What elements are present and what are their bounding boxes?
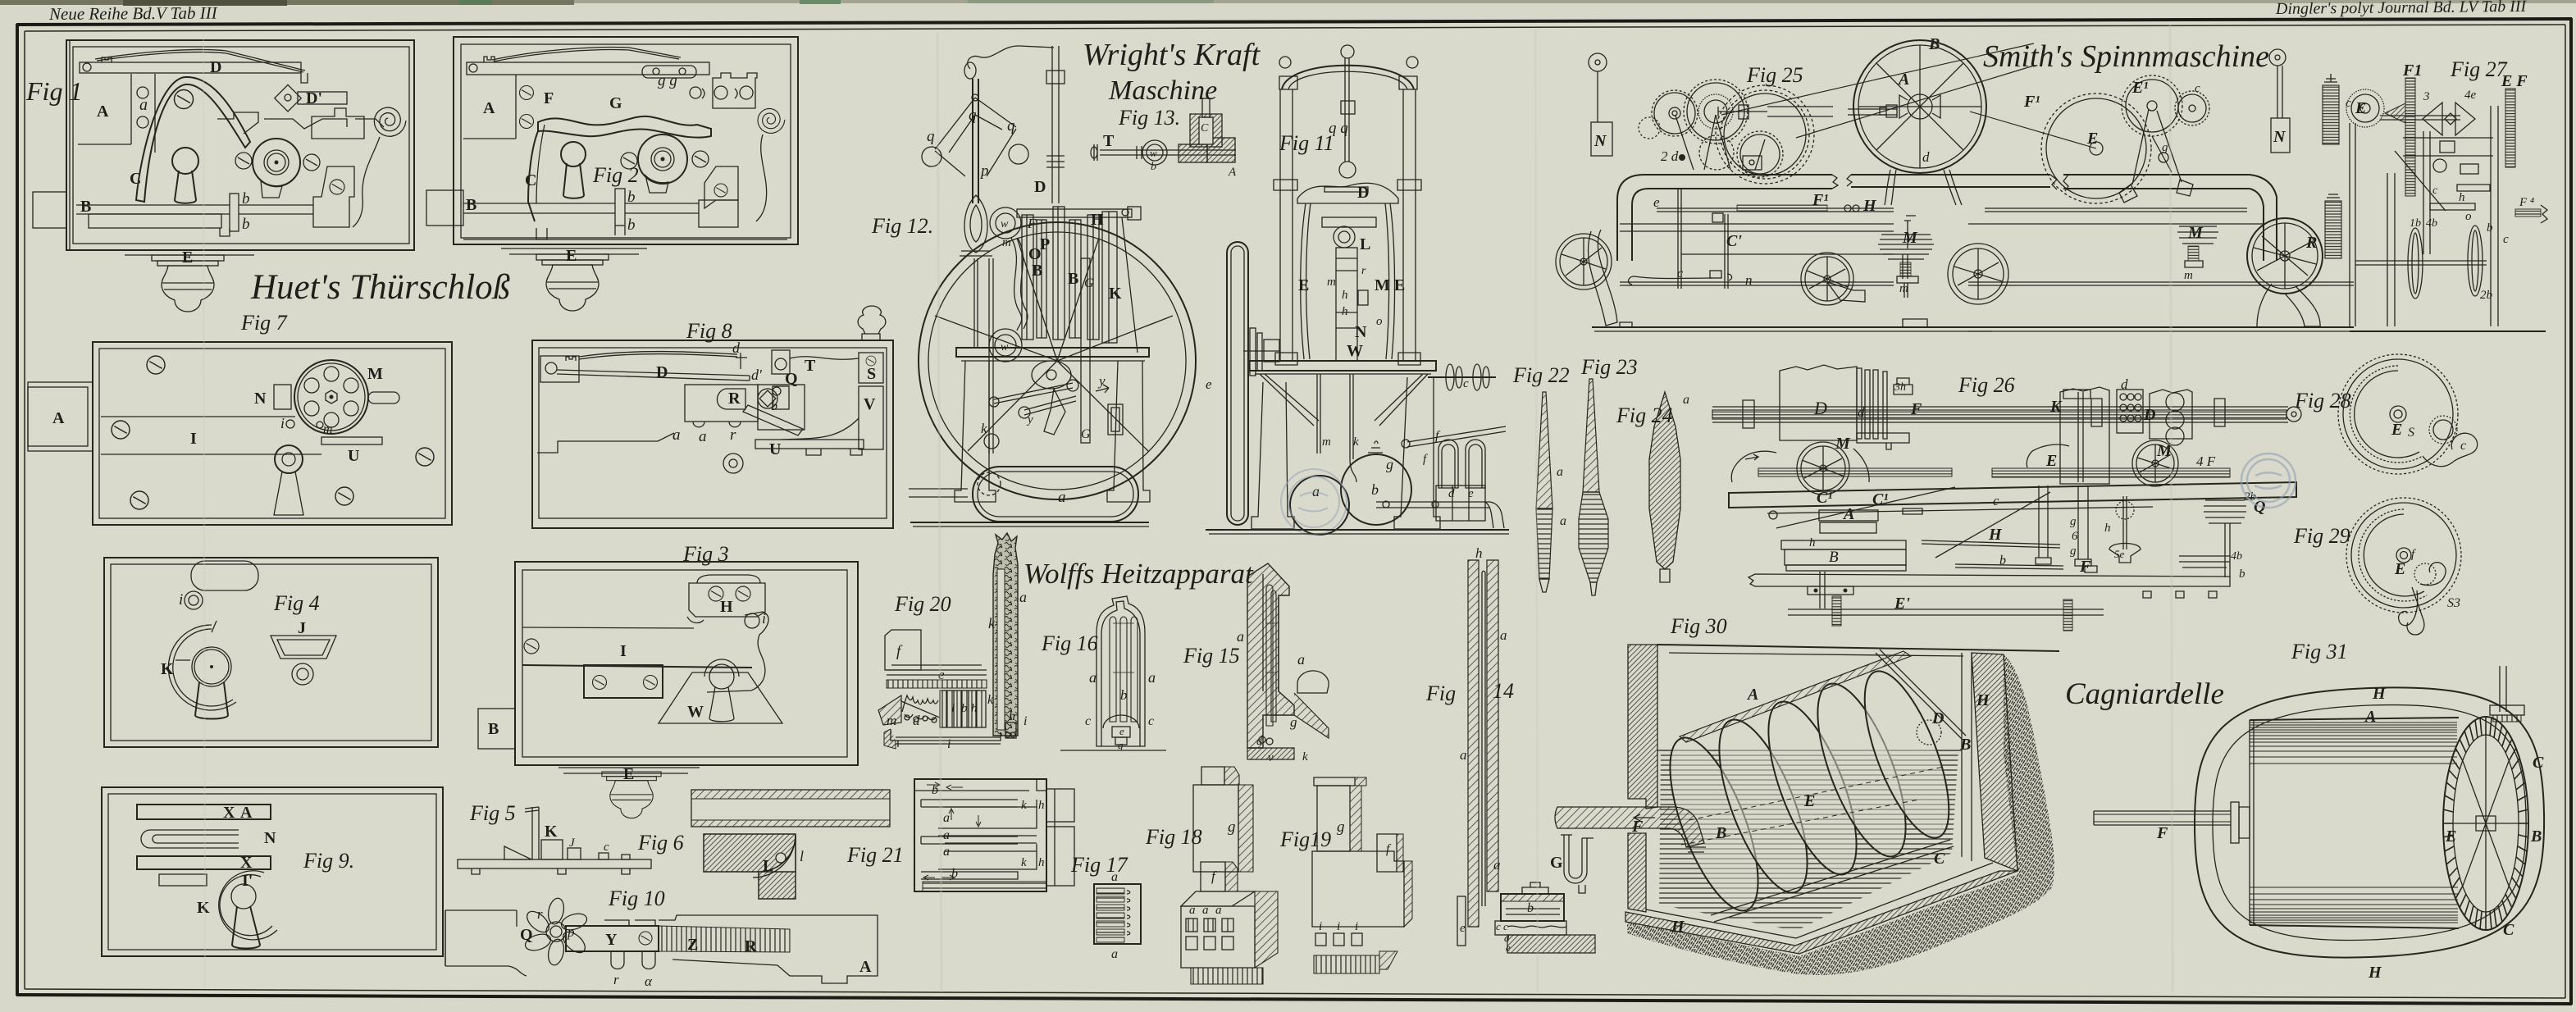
- svg-text:q q: q q: [1329, 120, 1348, 137]
- svg-text:e: e: [1206, 376, 1212, 392]
- svg-text:c: c: [604, 841, 609, 854]
- svg-text:U: U: [348, 447, 359, 465]
- svg-text:E: E: [2391, 421, 2402, 439]
- svg-text:Fig 9.: Fig 9.: [303, 849, 354, 873]
- svg-text:T: T: [805, 357, 816, 375]
- svg-text:N: N: [264, 829, 276, 847]
- svg-text:c c: c c: [1496, 920, 1508, 932]
- svg-text:F: F: [1910, 400, 1922, 418]
- svg-text:a: a: [1189, 904, 1196, 917]
- svg-text:E: E: [1298, 276, 1309, 294]
- svg-text:g: g: [2162, 141, 2168, 154]
- svg-text:e: e: [1460, 922, 1466, 935]
- svg-text:K: K: [545, 823, 558, 841]
- svg-text:b: b: [771, 399, 777, 413]
- svg-text:T: T: [1103, 132, 1115, 150]
- svg-text:B: B: [1959, 736, 1971, 754]
- svg-text:c: c: [2195, 82, 2200, 95]
- svg-text:Fig 13.: Fig 13.: [1118, 106, 1180, 130]
- svg-text:h: h: [2104, 522, 2111, 535]
- svg-text:k: k: [987, 693, 994, 707]
- svg-text:c: c: [2432, 185, 2438, 197]
- svg-text:Fig 10: Fig 10: [608, 887, 665, 910]
- svg-text:d: d: [1256, 736, 1263, 748]
- svg-text:R: R: [745, 937, 757, 955]
- svg-text:g g: g g: [658, 72, 677, 89]
- svg-text:Fig 6: Fig 6: [637, 831, 684, 855]
- svg-text:a: a: [943, 828, 950, 842]
- svg-text:d': d': [751, 367, 763, 383]
- svg-text:d: d: [1448, 487, 1455, 500]
- svg-text:Fig19: Fig19: [1279, 827, 1331, 851]
- svg-text:6: 6: [2072, 530, 2078, 543]
- svg-text:J: J: [298, 619, 306, 637]
- svg-text:E¹: E¹: [2131, 79, 2148, 97]
- svg-text:k: k: [1353, 435, 1359, 449]
- svg-text:3h: 3h: [1894, 381, 1906, 394]
- svg-text:q: q: [1007, 117, 1015, 134]
- svg-text:V: V: [864, 395, 876, 413]
- svg-text:A: A: [859, 958, 872, 976]
- svg-text:B: B: [1715, 824, 1726, 842]
- svg-text:F: F: [1027, 216, 1037, 231]
- svg-text:D: D: [1931, 709, 1944, 727]
- svg-text:Dingler's polyt Journal Bd. L: Dingler's polyt Journal Bd. LV Tab III: [2275, 0, 2528, 18]
- svg-text:r: r: [537, 906, 543, 922]
- svg-text:S: S: [867, 365, 876, 383]
- svg-text:Fig 16: Fig 16: [1041, 631, 1098, 655]
- svg-text:b: b: [1151, 161, 1156, 173]
- svg-text:F¹: F¹: [1812, 191, 1828, 209]
- svg-text:H: H: [1671, 918, 1685, 936]
- svg-text:Fig 30: Fig 30: [1670, 614, 1727, 638]
- svg-text:h: h: [1038, 856, 1045, 869]
- svg-text:C: C: [1934, 850, 1945, 868]
- svg-text:E: E: [2045, 452, 2057, 470]
- svg-text:H: H: [1091, 211, 1104, 229]
- svg-text:w: w: [1001, 341, 1009, 353]
- svg-text:Z: Z: [687, 936, 698, 954]
- svg-text:E F: E F: [2501, 72, 2528, 90]
- svg-text:X: X: [223, 804, 235, 822]
- svg-text:a: a: [1019, 589, 1027, 605]
- svg-text:A: A: [97, 103, 109, 121]
- svg-text:a: a: [1237, 628, 1244, 645]
- svg-text:C: C: [2503, 921, 2514, 939]
- svg-text:a: a: [1202, 904, 1209, 917]
- svg-text:h: h: [971, 702, 978, 715]
- svg-text:m: m: [1002, 236, 1011, 249]
- svg-text:K: K: [1109, 285, 1122, 303]
- svg-text:a: a: [1297, 651, 1305, 668]
- svg-text:D: D: [210, 58, 221, 76]
- svg-text:N: N: [254, 390, 267, 408]
- svg-text:N: N: [1593, 132, 1607, 150]
- svg-text:a: a: [1500, 627, 1507, 643]
- svg-text:3: 3: [2423, 90, 2430, 103]
- svg-text:H: H: [1988, 526, 2003, 544]
- svg-text:g: g: [1337, 818, 1345, 836]
- svg-text:Cagniardelle: Cagniardelle: [2065, 677, 2224, 711]
- svg-text:d: d: [2121, 376, 2128, 392]
- svg-text:5e: 5e: [2114, 548, 2125, 560]
- svg-text:n: n: [1745, 272, 1753, 288]
- svg-text:W: W: [687, 703, 704, 721]
- svg-text:E: E: [1803, 792, 1815, 810]
- svg-text:k: k: [1021, 856, 1027, 869]
- svg-text:B: B: [1928, 35, 1940, 53]
- svg-text:D: D: [656, 363, 668, 381]
- svg-text:m: m: [1327, 276, 1336, 289]
- svg-text:L: L: [763, 857, 773, 875]
- svg-text:Fig 15: Fig 15: [1183, 644, 1240, 668]
- svg-text:b: b: [1999, 554, 2006, 568]
- svg-text:r: r: [613, 972, 619, 987]
- svg-text:α: α: [645, 973, 653, 989]
- svg-text:w: w: [1001, 218, 1009, 230]
- svg-text:E: E: [2355, 99, 2366, 117]
- svg-text:I': I': [242, 872, 253, 890]
- svg-text:a: a: [1058, 489, 1066, 506]
- svg-text:F: F: [2156, 824, 2168, 842]
- svg-text:l: l: [800, 848, 804, 864]
- svg-text:Q: Q: [520, 926, 533, 944]
- svg-text:F: F: [544, 89, 554, 107]
- svg-text:v: v: [1268, 751, 1274, 764]
- svg-text:c: c: [2503, 233, 2509, 246]
- svg-text:C: C: [525, 171, 536, 189]
- svg-text:a: a: [1312, 483, 1320, 499]
- svg-text:q: q: [927, 128, 935, 145]
- svg-text:g: g: [1290, 714, 1297, 730]
- svg-text:D': D': [306, 89, 322, 107]
- svg-text:c: c: [1148, 714, 1154, 728]
- svg-text:A: A: [52, 409, 65, 427]
- svg-text:b: b: [242, 216, 250, 233]
- svg-text:A: A: [1842, 505, 1854, 523]
- svg-text:i: i: [1024, 714, 1027, 728]
- svg-text:p: p: [979, 162, 989, 180]
- svg-text:C: C: [2533, 754, 2544, 772]
- svg-text:e: e: [1119, 725, 1124, 737]
- svg-text:Fig 20: Fig 20: [894, 592, 951, 616]
- svg-text:Q: Q: [785, 370, 798, 388]
- svg-text:B: B: [1068, 270, 1078, 288]
- svg-text:g: g: [1228, 818, 1236, 836]
- svg-text:F: F: [1631, 818, 1644, 836]
- svg-text:b: b: [961, 702, 968, 715]
- svg-text:G: G: [609, 94, 622, 112]
- svg-text:D: D: [2143, 406, 2155, 424]
- svg-text:g: g: [2070, 515, 2077, 528]
- svg-text:G: G: [1081, 427, 1091, 441]
- svg-text:P: P: [1040, 235, 1050, 253]
- svg-text:F¹: F¹: [2023, 93, 2040, 111]
- svg-text:C: C: [1201, 122, 1209, 134]
- svg-text:h: h: [1809, 536, 1816, 549]
- svg-text:Fig 5: Fig 5: [469, 801, 516, 825]
- svg-text:Neue Reihe Bd.V Tab III: Neue Reihe Bd.V Tab III: [48, 3, 218, 24]
- svg-text:d: d: [1858, 404, 1865, 420]
- svg-text:Fig 28: Fig 28: [2294, 389, 2351, 413]
- svg-text:g: g: [1386, 456, 1393, 472]
- svg-text:A: A: [240, 804, 253, 822]
- svg-text:W: W: [1347, 342, 1363, 360]
- svg-text:Huet's Thürschloß: Huet's Thürschloß: [250, 268, 510, 307]
- svg-text:i: i: [1355, 920, 1358, 933]
- svg-text:Fig 29: Fig 29: [2293, 524, 2350, 548]
- svg-text:Fig: Fig: [1425, 682, 1456, 705]
- svg-text:4b: 4b: [2231, 550, 2242, 563]
- svg-text:S3: S3: [2447, 596, 2460, 610]
- svg-text:b: b: [627, 189, 636, 206]
- svg-text:a: a: [699, 428, 707, 445]
- svg-text:h: h: [2459, 191, 2465, 204]
- svg-text:c: c: [1463, 377, 1469, 390]
- svg-text:K: K: [2049, 398, 2063, 416]
- svg-text:X: X: [240, 854, 253, 872]
- svg-text:F ⁴: F ⁴: [2519, 196, 2534, 209]
- svg-text:m: m: [323, 422, 333, 436]
- svg-text:F: F: [2079, 558, 2091, 576]
- svg-text:A: A: [1897, 71, 1909, 89]
- svg-text:k: k: [1302, 750, 1308, 764]
- svg-text:B: B: [1032, 262, 1042, 280]
- svg-text:G: G: [1084, 276, 1094, 290]
- svg-text:c: c: [1993, 493, 1999, 508]
- svg-text:A: A: [2364, 708, 2376, 726]
- svg-text:Fig 27: Fig 27: [2450, 57, 2508, 81]
- svg-text:k: k: [981, 421, 987, 436]
- svg-text:d: d: [732, 340, 741, 356]
- svg-text:a: a: [943, 845, 950, 859]
- svg-text:g: g: [2070, 545, 2077, 558]
- svg-text:b: b: [1527, 901, 1534, 915]
- svg-text:e: e: [1653, 194, 1660, 210]
- svg-text:U: U: [769, 440, 781, 458]
- svg-text:D: D: [1034, 178, 1046, 196]
- svg-text:H: H: [1862, 197, 1877, 215]
- svg-text:a: a: [1148, 669, 1156, 686]
- svg-text:a: a: [1215, 904, 1222, 917]
- svg-text:h: h: [1475, 545, 1483, 561]
- svg-text:E: E: [2445, 827, 2456, 846]
- svg-text:M: M: [367, 365, 383, 383]
- svg-text:a: a: [1111, 870, 1118, 884]
- svg-text:H: H: [2372, 685, 2387, 703]
- svg-text:a: a: [1460, 747, 1467, 763]
- svg-text:B: B: [1829, 549, 1839, 566]
- svg-text:m: m: [2184, 269, 2193, 282]
- svg-text:Smith's Spinnmaschine: Smith's Spinnmaschine: [1983, 39, 2269, 74]
- svg-text:C¹: C¹: [1817, 489, 1832, 507]
- svg-text:y: y: [1026, 413, 1033, 426]
- svg-text:E: E: [566, 247, 577, 265]
- svg-text:l: l: [951, 702, 955, 715]
- svg-text:Fig 8: Fig 8: [686, 319, 732, 343]
- svg-text:Fig 22: Fig 22: [1512, 363, 1570, 387]
- svg-text:1b: 1b: [2410, 217, 2421, 230]
- svg-text:B: B: [488, 720, 499, 738]
- svg-text:h: h: [1038, 799, 1045, 812]
- svg-text:i: i: [280, 415, 285, 431]
- svg-text:m: m: [1322, 435, 1331, 449]
- svg-text:I: I: [620, 642, 627, 660]
- svg-text:i: i: [179, 591, 183, 609]
- svg-text:c: c: [2460, 439, 2466, 453]
- svg-text:E': E': [1894, 595, 1910, 613]
- svg-text:k: k: [1021, 799, 1027, 812]
- svg-text:Fig 11: Fig 11: [1279, 131, 1334, 155]
- svg-text:b: b: [2239, 568, 2245, 581]
- svg-text:R: R: [728, 390, 741, 408]
- svg-text:b: b: [1120, 687, 1128, 703]
- svg-text:2 d: 2 d: [1661, 148, 1679, 164]
- svg-text:H: H: [720, 598, 733, 616]
- svg-text:4 F: 4 F: [2196, 454, 2216, 469]
- svg-text:F1: F1: [2402, 62, 2422, 80]
- svg-text:a: a: [1557, 465, 1563, 479]
- svg-text:w: w: [1150, 147, 1157, 159]
- svg-text:m: m: [887, 713, 896, 728]
- svg-text:A: A: [1746, 686, 1758, 704]
- svg-text:I: I: [190, 430, 197, 448]
- svg-text:b: b: [1371, 481, 1379, 498]
- svg-text:a: a: [1493, 857, 1501, 873]
- svg-text:A: A: [483, 99, 495, 117]
- svg-text:g: g: [1118, 739, 1124, 751]
- svg-text:Fig 31: Fig 31: [2291, 640, 2348, 663]
- svg-text:C: C: [130, 170, 141, 188]
- svg-text:r: r: [730, 426, 736, 444]
- svg-text:B: B: [80, 198, 91, 216]
- svg-text:b: b: [2487, 221, 2493, 235]
- svg-text:i: i: [1319, 920, 1322, 933]
- svg-text:h: h: [1342, 305, 1348, 318]
- svg-text:2b: 2b: [2480, 289, 2493, 302]
- svg-text:Maschine: Maschine: [1108, 75, 1217, 106]
- svg-text:y: y: [1097, 373, 1106, 389]
- svg-text:o: o: [2465, 210, 2472, 223]
- svg-text:a: a: [672, 426, 681, 444]
- svg-text:K: K: [197, 899, 210, 917]
- svg-text:Fig 1: Fig 1: [25, 76, 82, 106]
- svg-text:M: M: [1902, 229, 1918, 247]
- svg-text:Fig 12.: Fig 12.: [871, 214, 933, 238]
- svg-text:H: H: [2368, 964, 2382, 982]
- svg-text:Fig 25: Fig 25: [1746, 63, 1803, 87]
- svg-text:b: b: [932, 783, 938, 797]
- svg-text:c: c: [1085, 714, 1091, 728]
- svg-text:E: E: [623, 765, 634, 783]
- svg-text:a: a: [1111, 947, 1118, 961]
- svg-text:L: L: [1360, 235, 1370, 253]
- svg-text:B: B: [466, 196, 476, 214]
- svg-text:4b: 4b: [2426, 217, 2437, 230]
- svg-text:D: D: [1813, 398, 1827, 418]
- svg-text:R: R: [2305, 234, 2317, 252]
- svg-text:E: E: [2394, 560, 2405, 578]
- svg-text:d: d: [1922, 149, 1930, 165]
- svg-text:Fig 17: Fig 17: [1070, 853, 1128, 877]
- svg-text:M E: M E: [1375, 276, 1405, 294]
- svg-text:o: o: [1376, 315, 1383, 328]
- svg-text:d: d: [913, 713, 920, 728]
- svg-text:Y: Y: [605, 931, 618, 949]
- svg-text:B: B: [2530, 827, 2542, 846]
- svg-text:Fig 21: Fig 21: [846, 843, 904, 867]
- svg-text:h: h: [1342, 289, 1348, 302]
- svg-text:N: N: [1355, 323, 1367, 341]
- svg-text:a: a: [1089, 669, 1097, 686]
- svg-text:k: k: [988, 615, 996, 631]
- svg-text:Wright's Kraft: Wright's Kraft: [1083, 38, 1261, 72]
- svg-text:b: b: [627, 217, 636, 234]
- svg-text:b: b: [242, 190, 250, 207]
- svg-text:K: K: [161, 660, 174, 678]
- svg-text:E: E: [2086, 130, 2098, 148]
- svg-text:e: e: [1468, 487, 1474, 500]
- svg-text:N: N: [2273, 128, 2286, 146]
- svg-text:Fig 2: Fig 2: [592, 163, 639, 187]
- svg-text:a: a: [1560, 514, 1566, 528]
- svg-text:S: S: [2408, 426, 2414, 440]
- svg-text:Fig 4: Fig 4: [273, 591, 320, 615]
- svg-text:C': C': [1726, 232, 1742, 250]
- svg-text:E: E: [182, 248, 193, 267]
- svg-text:D: D: [1357, 184, 1369, 202]
- svg-text:i: i: [1337, 920, 1340, 933]
- svg-text:q: q: [969, 107, 977, 124]
- svg-text:r: r: [1361, 265, 1366, 277]
- svg-text:Fig 7: Fig 7: [240, 311, 288, 335]
- svg-text:H: H: [1976, 691, 1990, 709]
- svg-text:A: A: [1228, 166, 1237, 179]
- svg-text:i: i: [762, 610, 766, 627]
- svg-text:C¹: C¹: [1872, 490, 1888, 508]
- svg-text:4e: 4e: [2464, 89, 2477, 102]
- svg-text:Fig 26: Fig 26: [1958, 373, 2015, 397]
- svg-text:m: m: [1899, 282, 1908, 295]
- svg-text:e: e: [1506, 941, 1511, 954]
- svg-text:M: M: [2187, 224, 2204, 242]
- svg-text:h: h: [1009, 709, 1015, 723]
- svg-text:i: i: [947, 737, 951, 751]
- svg-text:Fig 23: Fig 23: [1580, 355, 1638, 379]
- svg-text:a: a: [1683, 393, 1689, 407]
- svg-text:G: G: [1550, 854, 1563, 872]
- svg-text:M: M: [1835, 435, 1851, 453]
- svg-text:Wolffs Heitzapparat: Wolffs Heitzapparat: [1024, 558, 1254, 590]
